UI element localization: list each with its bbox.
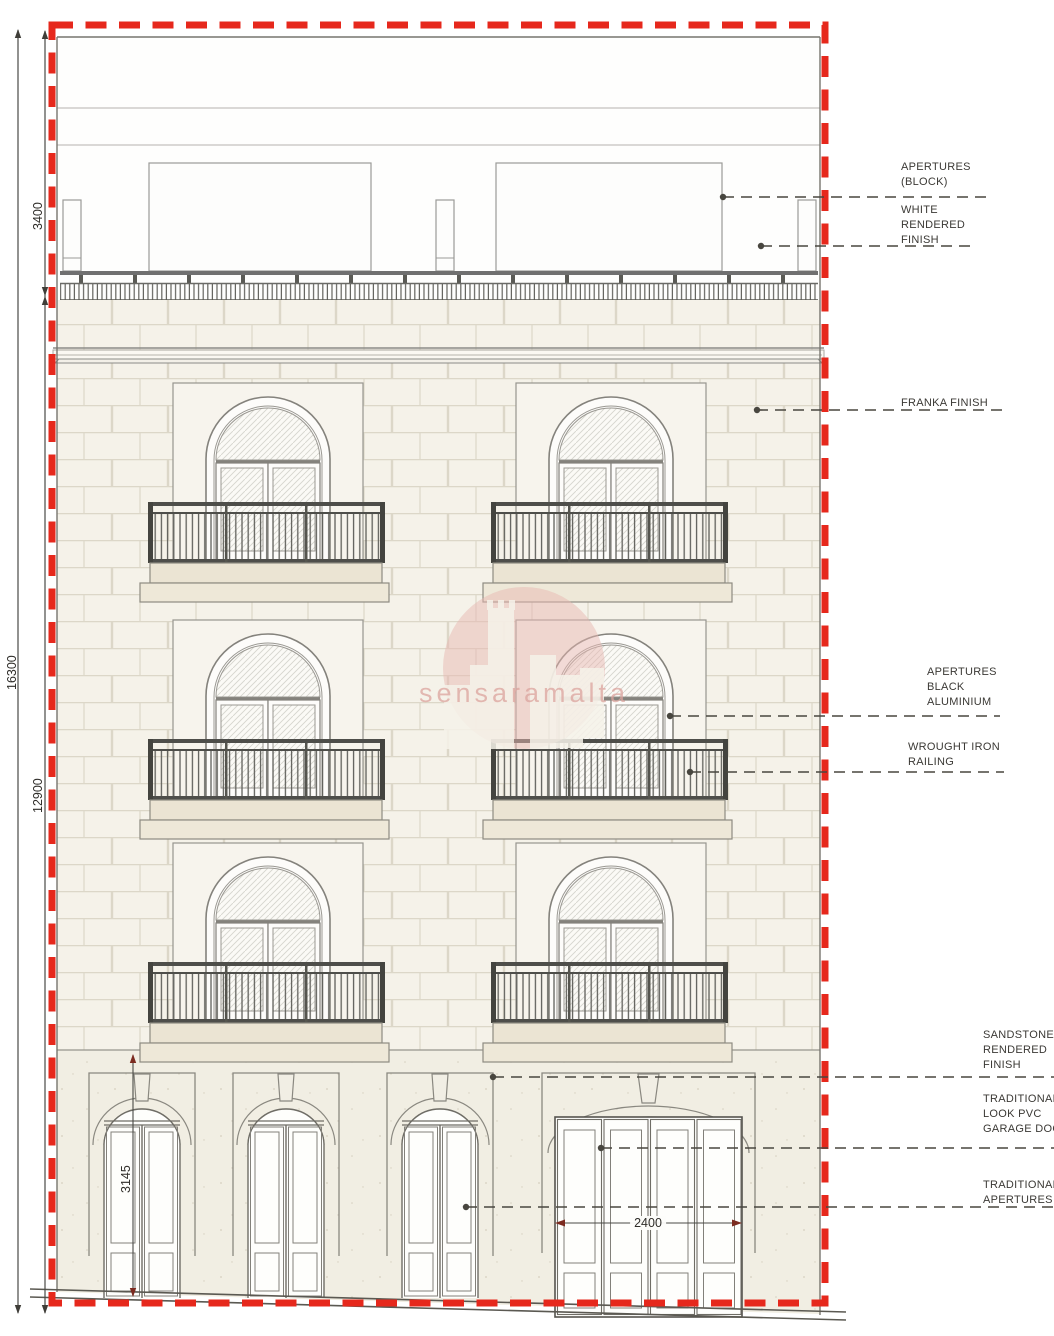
annotation-line: FRANKA FINISH <box>901 396 988 411</box>
annotation-apertures-black-aluminium: APERTURES BLACK ALUMINIUM <box>927 665 997 710</box>
annotation-franka-finish: FRANKA FINISH <box>901 396 988 411</box>
annotation-line: WROUGHT IRON <box>908 740 1000 755</box>
annotation-line: WHITE <box>901 203 965 218</box>
annotation-line: FINISH <box>901 233 965 248</box>
annotation-sandstone-rendered-finish: SANDSTONE RENDERED FINISH <box>983 1028 1054 1073</box>
annotation-line: (BLOCK) <box>901 175 971 190</box>
roof-block-right <box>496 163 722 271</box>
facade-linework <box>0 0 1054 1336</box>
watermark-logo <box>443 587 605 749</box>
annotation-line: GARAGE DOOR <box>983 1122 1054 1137</box>
roof-parapet-railing <box>60 271 818 300</box>
annotation-white-rendered-finish: WHITE RENDERED FINISH <box>901 203 965 248</box>
cornice <box>53 348 824 363</box>
annotation-line: RAILING <box>908 755 1000 770</box>
annotation-line: APERTURES <box>901 160 971 175</box>
roof-block-left <box>149 163 371 271</box>
annotation-line: RENDERED <box>901 218 965 233</box>
annotation-line: APERTURES <box>927 665 997 680</box>
watermark-text: sensaramalta <box>419 678 629 709</box>
annotation-line: FINISH <box>983 1058 1054 1073</box>
balcony-railing <box>140 739 389 839</box>
dimension-door-height: 3145 <box>119 1165 133 1193</box>
annotation-line: LOOK PVC <box>983 1107 1054 1122</box>
dimension-garage-width: 2400 <box>630 1216 666 1230</box>
annotation-line: SANDSTONE <box>983 1028 1054 1043</box>
balcony-railing <box>483 502 732 602</box>
annotation-wrought-iron-railing: WROUGHT IRON RAILING <box>908 740 1000 770</box>
annotation-line: RENDERED <box>983 1043 1054 1058</box>
annotation-line: TRADITIONAL <box>983 1092 1054 1107</box>
dimension-overall-height: 16300 <box>5 655 19 690</box>
annotation-line: BLACK <box>927 680 997 695</box>
balcony-railing <box>483 962 732 1062</box>
dimension-facade-height: 12900 <box>31 778 45 813</box>
roof-level <box>57 37 820 300</box>
annotation-traditional-pvc-garage-door: TRADITIONAL LOOK PVC GARAGE DOOR <box>983 1092 1054 1137</box>
dimension-roof-level: 3400 <box>31 202 45 230</box>
annotation-line: TRADITIONAL <box>983 1178 1054 1193</box>
annotation-apertures-block: APERTURES (BLOCK) <box>901 160 971 190</box>
balcony-railing <box>140 962 389 1062</box>
elevation-drawing: sensaramalta APERTURES (BLOCK) WHITE REN… <box>0 0 1054 1336</box>
annotation-line: ALUMINIUM <box>927 695 997 710</box>
annotation-line: APERTURES <box>983 1193 1054 1208</box>
annotation-traditional-apertures: TRADITIONAL APERTURES <box>983 1178 1054 1208</box>
balcony-railing <box>483 739 732 839</box>
balcony-railing <box>140 502 389 602</box>
